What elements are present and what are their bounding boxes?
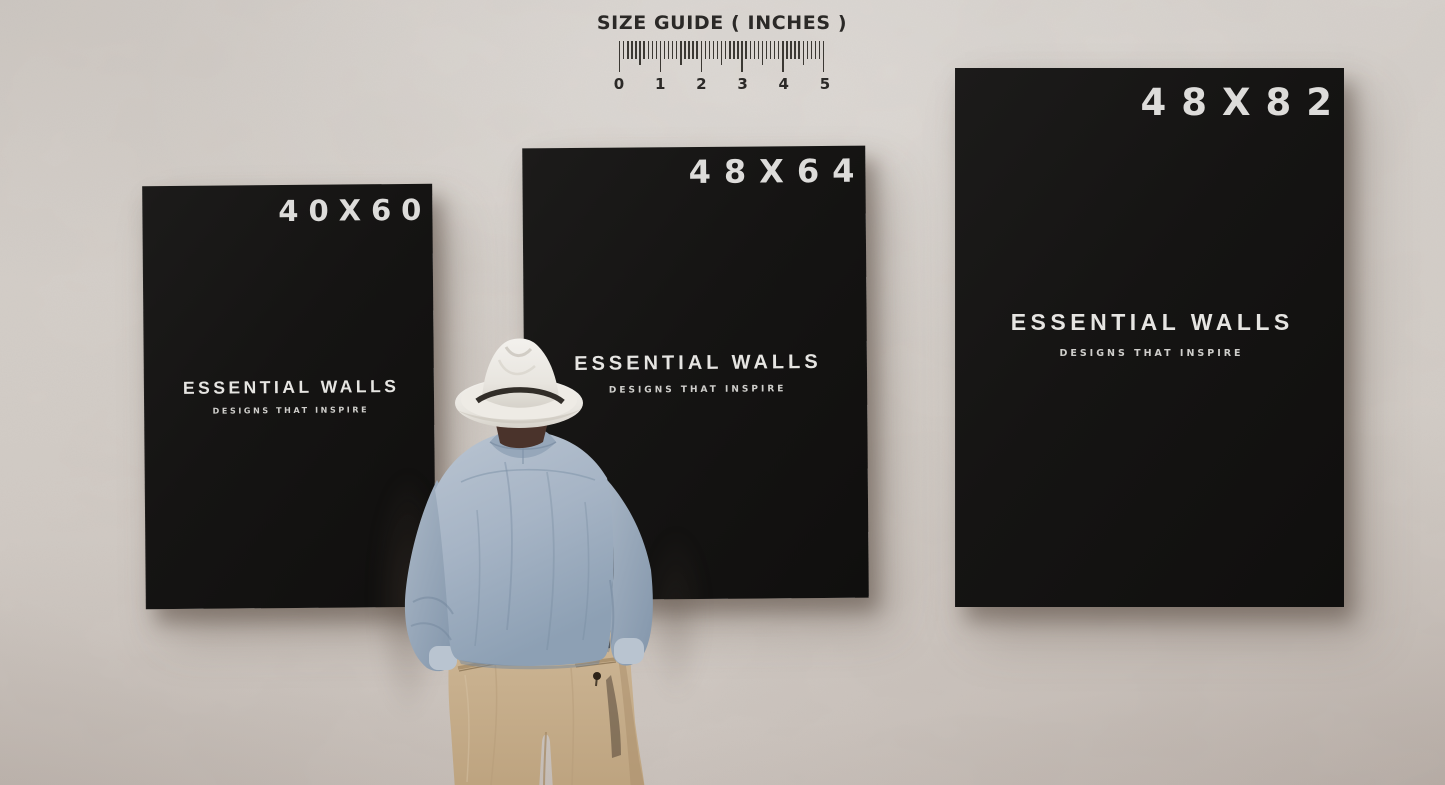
ruler-tick [807,41,808,59]
ruler-tick [750,41,751,59]
ruler-tick [754,41,755,59]
ruler-tick [819,41,820,59]
ruler-tick [639,41,640,65]
ruler-tick [770,41,771,59]
person-figure [395,330,665,785]
ruler-number: 0 [611,75,627,93]
ruler-tick [794,41,795,59]
ruler-tick [790,41,791,59]
ruler-tick [766,41,767,59]
ruler-tick [643,41,644,59]
ruler-tick [627,41,628,59]
poster-brand: ESSENTIAL WALLS [145,376,434,400]
ruler-tick [758,41,759,59]
ruler-tick [664,41,665,59]
ruler-tick [656,41,657,59]
ruler-tick [631,41,632,59]
ruler-tick [811,41,812,59]
poster-size-label: 40X60 [278,193,431,228]
ruler-tick [652,41,653,59]
ruler-number: 1 [652,75,668,93]
ruler-tick [668,41,669,59]
ruler-ticks [619,41,825,73]
ruler-tick [648,41,649,59]
ruler-tick [709,41,710,59]
size-guide-title: SIZE GUIDE ( INCHES ) [560,12,884,34]
ruler-tick [782,41,783,72]
poster-size-label: 48X82 [1140,81,1347,124]
poster-brand: ESSENTIAL WALLS [956,309,1344,336]
ruler-tick [672,41,673,59]
ruler-tick [774,41,775,59]
ruler-tick [733,41,734,59]
ruler-tick [680,41,681,65]
poster-tagline: DESIGNS THAT INSPIRE [145,405,434,417]
ruler-tick [635,41,636,59]
ruler-number: 4 [776,75,792,93]
ruler-tick [705,41,706,59]
ruler: 012345 [619,41,825,93]
ruler-tick [619,41,620,72]
ruler-tick [692,41,693,59]
ruler-tick [737,41,738,59]
ruler-tick [623,41,624,59]
person-shirt [405,425,653,671]
ruler-tick [684,41,685,59]
ruler-number: 3 [735,75,751,93]
ruler-tick [676,41,677,59]
ruler-tick [823,41,824,72]
ruler-tick [717,41,718,59]
ruler-tick [729,41,730,59]
ruler-tick [745,41,746,59]
shirt-cuff [614,638,644,664]
ruler-numbers: 012345 [611,75,833,93]
ruler-tick [803,41,804,65]
ruler-tick [713,41,714,59]
ruler-tick [741,41,742,72]
ruler-number: 2 [693,75,709,93]
fedora-hat [455,338,583,428]
ruler-tick [798,41,799,59]
ruler-tick [660,41,661,72]
scene-wall-art-size-mockup: SIZE GUIDE ( INCHES ) 012345 40X60 ESSEN… [0,0,1445,785]
size-guide: SIZE GUIDE ( INCHES ) 012345 [560,12,884,86]
ruler-tick [721,41,722,65]
ruler-tick [688,41,689,59]
poster-40x60: 40X60 ESSENTIAL WALLS DESIGNS THAT INSPI… [142,184,436,610]
ruler-tick [786,41,787,59]
poster-48x82: 48X82 ESSENTIAL WALLS DESIGNS THAT INSPI… [955,68,1344,607]
poster-tagline: DESIGNS THAT INSPIRE [956,348,1344,359]
ruler-number: 5 [817,75,833,93]
ruler-tick [701,41,702,72]
ruler-tick [778,41,779,59]
ruler-tick [696,41,697,59]
ruler-tick [815,41,816,59]
poster-size-label: 48X64 [689,152,868,191]
ruler-tick [725,41,726,59]
ruler-tick [762,41,763,65]
